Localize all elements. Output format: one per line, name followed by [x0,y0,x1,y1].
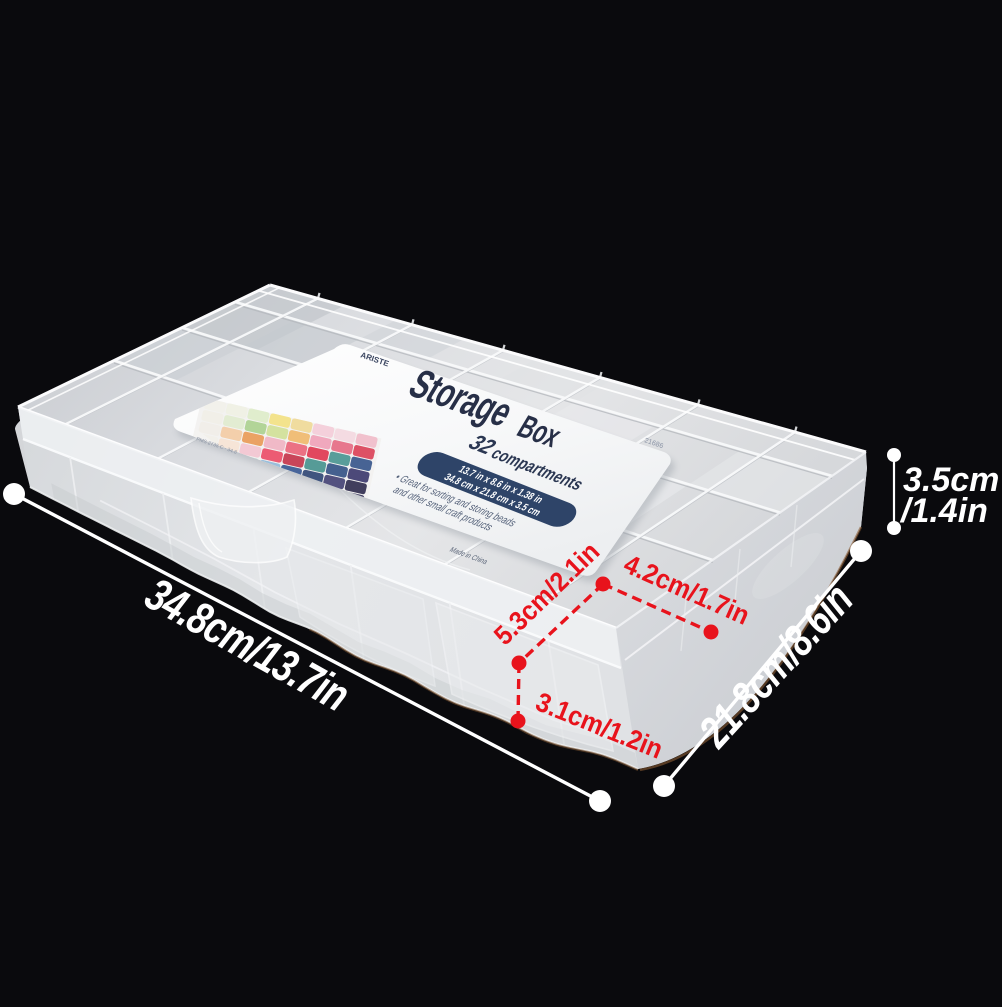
svg-text:/1.4in: /1.4in [899,492,988,530]
